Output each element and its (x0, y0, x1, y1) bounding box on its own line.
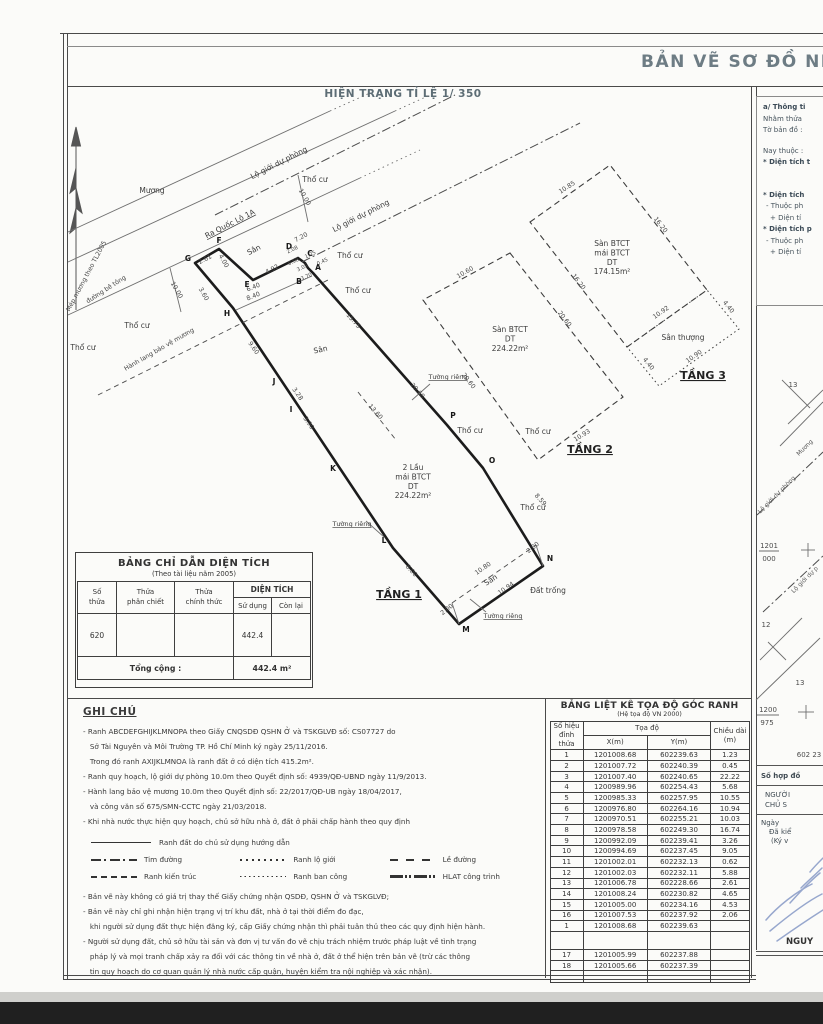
info-line: * Diện tích (763, 190, 823, 202)
coord-cell: 1200994.69 (583, 846, 647, 857)
coord-cell: 1201005.00 (583, 899, 647, 910)
floor2-slab (423, 253, 623, 460)
map-label: Thổ cư (336, 251, 363, 260)
map-label: J (272, 377, 276, 386)
map-line (330, 93, 370, 111)
coord-cell (711, 931, 749, 949)
info-line: + Diện tí (763, 213, 823, 225)
map-label: 4.40 (721, 299, 735, 314)
note-line: khi người sử dụng đất thực hiện đăng ký,… (83, 919, 539, 934)
map-label: Mương (139, 186, 165, 195)
map-label: 20.60 (460, 372, 477, 391)
coord-cell: 1.23 (711, 750, 749, 761)
coord-cell (711, 921, 749, 932)
coord-cell: 1201007.40 (583, 771, 647, 782)
note-line: Trong đó ranh AXIJKLMNOA là ranh đất ở c… (83, 754, 539, 769)
map-label: 2.61 (197, 253, 213, 266)
coord-cell: 1200989.96 (583, 782, 647, 793)
coord-cell: 602237.92 (647, 910, 711, 921)
legend-line-solid (91, 842, 151, 843)
coord-cell: 602230.82 (647, 889, 711, 900)
legend-row: Ranh kiến trúcRanh ban côngHLAT công trì… (91, 868, 539, 885)
map-label: TẦNG 2 (567, 442, 613, 456)
coord-table: Số hiệu đỉnh thửa Tọa độ Chiều dài (m) X… (550, 721, 750, 983)
minimap-label: 000 (762, 555, 775, 563)
info-line: - Thuộc ph (763, 236, 823, 248)
coord-cell: 1201007.53 (583, 910, 647, 921)
owner-line1: NGƯỜI (765, 790, 823, 800)
coord-cell: 1201002.03 (583, 867, 647, 878)
map-label: I (290, 405, 293, 414)
cell-su-dung: 442.4 (234, 614, 272, 657)
coord-cell: 3 (550, 771, 583, 782)
coord-cell: 602237.39 (647, 960, 711, 971)
map-label: Ra Quốc Lộ 1A (203, 207, 257, 240)
coord-cell: 1200992.09 (583, 835, 647, 846)
legend-line-dotfine (240, 876, 286, 878)
coord-cell: 12 (550, 867, 583, 878)
minimap-line (756, 638, 820, 700)
coord-cell (711, 960, 749, 971)
coord-cell: 602239.41 (647, 835, 711, 846)
coord-cell: 1 (550, 750, 583, 761)
coord-cell: 8 (550, 825, 583, 836)
sign-note-label: (Ký v (756, 836, 823, 845)
coord-cell: 10.03 (711, 814, 749, 825)
minimap-line (780, 402, 823, 446)
coord-cell: 1200985.33 (583, 793, 647, 804)
map-label: N (547, 554, 553, 563)
legend-line-dashed (91, 876, 137, 878)
map-label: 9.60 (246, 340, 260, 356)
map-label: P (450, 411, 456, 420)
map-label: Thổ cư (301, 175, 328, 184)
coord-cell: 2 (550, 760, 583, 771)
coord-cell: 602240.65 (647, 771, 711, 782)
map-label: 7.20 (293, 231, 309, 244)
coord-cell: 7 (550, 814, 583, 825)
legend-label: HLAT công trình (443, 872, 500, 881)
col-dien-tich: DIỆN TÍCH (234, 582, 311, 598)
map-label: F (216, 236, 221, 245)
coord-cell: 1200970.51 (583, 814, 647, 825)
coord-cell: 1 (550, 921, 583, 932)
sign-bottom-rule (756, 951, 823, 956)
map-label: 3.60 (197, 286, 210, 302)
map-label: M (462, 625, 469, 634)
coord-cell (711, 971, 749, 983)
coord-cell: 602257.95 (647, 793, 711, 804)
area-table-subtitle: (Theo tài liệu năm 2005) (76, 570, 312, 578)
map-label: TẦNG 3 (680, 368, 726, 382)
map-label: 10.93 (573, 428, 592, 443)
scan-edge-dark (0, 1002, 823, 1024)
map-line (68, 111, 395, 262)
map-label: Lộ giới dự phòng (331, 197, 391, 234)
coord-cell: 14 (550, 889, 583, 900)
map-label: 16.20 (652, 216, 669, 235)
info-line: - Thuộc ph (763, 201, 823, 213)
map-label: 15.75 (344, 312, 361, 330)
coord-cell: 602228.66 (647, 878, 711, 889)
cell-phan-chiet (117, 614, 175, 657)
coord-cell: 2.61 (711, 878, 749, 889)
legend-item: Ranh ban công (240, 872, 389, 881)
coord-cell: 0.62 (711, 857, 749, 868)
minimap-label: 1200 (759, 706, 777, 714)
col-chieu-dai: Chiều dài (m) (711, 722, 749, 750)
coord-cell: 9.05 (711, 846, 749, 857)
map-label: Thổ cư (123, 321, 150, 330)
info-line: * Diện tích p (763, 224, 823, 236)
coord-cell (550, 971, 583, 983)
coord-cell (583, 931, 647, 949)
note-line: pháp lý và mọi tranh chấp xảy ra đối với… (83, 949, 539, 964)
legend-item: HLAT công trình (390, 872, 539, 881)
scanned-survey-sheet: BẢN VẼ SƠ ĐỒ NH HIỆN TRẠNG TỈ LỆ 1/ 350 … (0, 0, 823, 1024)
map-line (302, 123, 580, 262)
map-label: 3.28 (290, 386, 304, 402)
coord-cell: 602237.88 (647, 949, 711, 960)
coord-cell: 602237.45 (647, 846, 711, 857)
coord-cell: 602249.30 (647, 825, 711, 836)
map-label: 13.60 (366, 403, 383, 421)
map-label: Sân thượng (661, 333, 704, 342)
coord-cell: 17 (550, 949, 583, 960)
map-label: H (224, 309, 230, 318)
signer-name: NGUY (756, 937, 823, 947)
coord-cell: 3.26 (711, 835, 749, 846)
info-line: a/ Thông ti (763, 102, 823, 114)
area-table-box: BẢNG CHỈ DẪN DIỆN TÍCH (Theo tài liệu nă… (75, 552, 313, 688)
minimap-label: 13 (796, 679, 805, 687)
coord-cell: 2.06 (711, 910, 749, 921)
coord-cell: 602264.16 (647, 803, 711, 814)
signature-block: Số hợp đồ NGƯỜI CHỦ S Ngày Đã kiể (Ký v … (756, 765, 823, 956)
info-line: Nhằm thửa (763, 114, 823, 126)
col-thua-chinh-thuc: Thửa chính thức (175, 582, 234, 614)
legend-line-dashdot (91, 859, 137, 861)
info-line: Nay thuộc : (763, 146, 823, 158)
legend-item: Ranh kiến trúc (91, 872, 240, 881)
note-line: - Người sử dụng đất, chủ sở hữu tài sản … (83, 934, 539, 949)
note-line: - Bản vẽ này chỉ ghi nhận hiện trạng vị … (83, 904, 539, 919)
area-table: Số thửa Thửa phân chiết Thửa chính thức … (77, 581, 311, 680)
col-toa-do: Tọa độ (583, 722, 711, 736)
map-label: G (185, 254, 191, 263)
cell-so-thua: 620 (78, 614, 117, 657)
map-label: Sân (246, 242, 263, 257)
col-x: X(m) (583, 736, 647, 750)
coord-cell: 10.55 (711, 793, 749, 804)
map-label: 20.60 (408, 382, 425, 400)
coord-cell: 6 (550, 803, 583, 814)
coord-cell: 602255.21 (647, 814, 711, 825)
minimap-label: 13 (789, 381, 798, 389)
coord-cell: 602239.63 (647, 921, 711, 932)
legend-label: Ranh ban công (293, 872, 347, 881)
map-label: Sàn BTCTDT224.22m² (492, 325, 529, 353)
owner-label: NGƯỜI CHỦ S (756, 786, 823, 815)
map-label: Tường riêng (331, 520, 371, 528)
coord-cell: 1200976.80 (583, 803, 647, 814)
info-line: * Diện tích t (763, 157, 823, 169)
legend-line-dotted (240, 859, 286, 861)
map-label: 0.58 (287, 257, 300, 267)
map-line (360, 150, 420, 178)
map-label: L (382, 536, 387, 545)
coord-cell: 1201008.24 (583, 889, 647, 900)
owner-line2: CHỦ S (765, 800, 823, 810)
coord-cell: 18 (550, 960, 583, 971)
coord-cell: 1201005.66 (583, 960, 647, 971)
map-label: 0.45 (316, 257, 329, 267)
coord-cell: 22.22 (711, 771, 749, 782)
map-label: Sân (482, 572, 499, 587)
info-line: + Diện tí (763, 247, 823, 259)
map-label: 10.85 (558, 180, 577, 196)
map-label: Thổ cư (69, 343, 96, 352)
line-legend: Ranh đất do chủ sử dụng hướng dẫn Tim đư… (91, 834, 539, 885)
area-table-title: BẢNG CHỈ DẪN DIỆN TÍCH (76, 558, 312, 569)
map-label: 3.70 (300, 272, 313, 282)
note-line: tin quy hoạch do cơ quan quản lý nhà nướ… (83, 964, 539, 979)
minimap-label: 1201 (760, 542, 778, 550)
legend-label: Ranh đất do chủ sử dụng hướng dẫn (159, 838, 290, 847)
legend-label: Ranh lộ giới (293, 855, 335, 864)
coord-cell: 11 (550, 857, 583, 868)
col-con-lai: Còn lại (272, 598, 311, 614)
coord-cell: 1200978.58 (583, 825, 647, 836)
coord-cell: 15 (550, 899, 583, 910)
coord-table-subtitle: (Hệ tọa độ VN 2000) (548, 711, 751, 718)
minimap-label: 975 (760, 719, 773, 727)
note-line: - Ranh ABCDEFGHIJKLMNOPA theo Giấy CNQSD… (83, 724, 539, 739)
minimap-label: Mương (795, 438, 814, 457)
col-point-id: Số hiệu đỉnh thửa (550, 722, 583, 750)
col-so-thua: Số thửa (78, 582, 117, 614)
col-thua-phan-chiet: Thửa phân chiết (117, 582, 175, 614)
coord-cell: 5 (550, 793, 583, 804)
map-label: 10.90 (685, 349, 704, 365)
coord-cell (550, 931, 583, 949)
map-label: Sàn BTCTmái BTCTDT174.15m² (594, 239, 631, 276)
coord-cell: 16 (550, 910, 583, 921)
coord-cell: 1201005.99 (583, 949, 647, 960)
map-line (215, 95, 455, 215)
coord-cell: 4.65 (711, 889, 749, 900)
coord-cell: 1201008.68 (583, 750, 647, 761)
map-label: 3.05 (296, 263, 309, 273)
legend-row: Tim đườngRanh lộ giớiLề đường (91, 851, 539, 868)
coord-cell: 602232.13 (647, 857, 711, 868)
total-label: Tổng cộng : (78, 657, 234, 680)
map-label: 10.00 (297, 188, 312, 207)
map-label: 10.60 (456, 265, 475, 280)
cell-con-lai (272, 614, 311, 657)
scan-edge-gray (0, 992, 823, 1002)
note-line: - Hành lang bảo vệ mương 10.0m theo Quyế… (83, 784, 539, 799)
note-line: và công văn số 675/SMN-CCTC ngày 21/03/2… (83, 799, 539, 814)
legend-label: Tim đường (144, 855, 182, 864)
note-line: - Bản vẽ này không có giá trị thay thế G… (83, 889, 539, 904)
map-label: 10.94 (497, 581, 516, 597)
coord-cell: 5.88 (711, 867, 749, 878)
minimap-label: Lộ giới dự p (790, 565, 820, 595)
legend-item: Ranh lộ giới (240, 855, 389, 864)
minimap-label: 602 23 (797, 751, 822, 759)
note-line: - Ranh quy hoạch, lộ giới dự phòng 10.0m… (83, 769, 539, 784)
coord-cell: 602254.43 (647, 782, 711, 793)
coord-table-box: BẢNG LIỆT KÊ TỌA ĐỘ GÓC RANH (Hệ tọa độ … (548, 700, 751, 983)
map-label: Đất trống (530, 586, 566, 595)
coord-cell: 0.45 (711, 760, 749, 771)
legend-item: Tim đường (91, 855, 240, 864)
minimap-label: 12 (762, 621, 771, 629)
coord-cell: 1201008.68 (583, 921, 647, 932)
coord-cell: 5.68 (711, 782, 749, 793)
coord-cell: 602239.63 (647, 750, 711, 761)
note-line: Sở Tài Nguyên và Môi Trường TP. Hồ Chí M… (83, 739, 539, 754)
coord-cell (647, 971, 711, 983)
map-label: Thổ cư (524, 427, 551, 436)
map-label: 4.92 (264, 263, 280, 276)
map-line (395, 95, 430, 111)
map-label: Hành lang bảo vệ mương (123, 326, 196, 373)
signature-space (756, 845, 823, 937)
note-line: - Khi nhà nước thực hiện quy hoạch, chủ … (83, 814, 539, 829)
legend-line-dashwide (390, 859, 436, 861)
map-label: 1.25 (304, 250, 317, 260)
date-label: Ngày (756, 815, 823, 827)
map-line (98, 279, 330, 395)
coord-cell: 10.94 (711, 803, 749, 814)
map-label: TẦNG 1 (376, 587, 422, 601)
map-label: Thổ cư (344, 286, 371, 295)
info-panel: a/ Thông tiNhằm thửaTờ bản đồ :Nay thuộc… (756, 96, 823, 306)
col-su-dung: Sử dụng (234, 598, 272, 614)
coord-cell: 10 (550, 846, 583, 857)
map-label: đường bê tông (84, 273, 127, 305)
map-label: Sân (313, 344, 329, 356)
map-label: Lộ giới dự phòng (249, 144, 309, 181)
notes-section: GHI CHÚ - Ranh ABCDEFGHIJKLMNOPA theo Gi… (67, 698, 545, 976)
contract-number-label: Số hợp đồ (756, 766, 823, 786)
legend-label: Ranh kiến trúc (144, 872, 196, 881)
col-y: Y(m) (647, 736, 711, 750)
map-label: Thổ cư (456, 426, 483, 435)
coord-cell: 4 (550, 782, 583, 793)
coord-table-title: BẢNG LIỆT KÊ TỌA ĐỘ GÓC RANH (548, 700, 751, 711)
map-label: 4.40 (641, 356, 655, 371)
legend-line-dashdotdot (390, 875, 436, 878)
info-line: Tờ bản đồ : (763, 125, 823, 137)
coord-cell: 4.53 (711, 899, 749, 910)
map-label: 10.00 (169, 281, 184, 300)
map-label: 2 Lầumái BTCTDT224.22m² (395, 463, 432, 500)
checked-label: Đã kiể (756, 827, 823, 836)
total-value: 442.4 m² (234, 657, 311, 680)
coord-cell: 9 (550, 835, 583, 846)
coord-cell: 602240.39 (647, 760, 711, 771)
coord-cell: 1201006.78 (583, 878, 647, 889)
coord-cell (647, 931, 711, 949)
map-label: O (489, 456, 495, 465)
notes-title: GHI CHÚ (83, 706, 539, 718)
map-line (68, 111, 330, 232)
coord-cell: 602234.16 (647, 899, 711, 910)
legend-item: Lề đường (390, 855, 539, 864)
map-line (68, 178, 360, 315)
map-label: 20.60 (556, 310, 573, 329)
cell-chinh-thuc (175, 614, 234, 657)
map-label: K (330, 464, 337, 473)
coord-cell: 16.74 (711, 825, 749, 836)
map-label: Tường riêng (482, 612, 522, 620)
map-label: 16.20 (570, 273, 587, 292)
coord-cell: 1201002.01 (583, 857, 647, 868)
minimap-label: Lộ giới dự phòng (757, 475, 797, 515)
coord-cell: 13 (550, 878, 583, 889)
legend-label: Lề đường (443, 855, 476, 864)
coord-cell: 1201007.72 (583, 760, 647, 771)
minimap-line (763, 556, 823, 612)
coord-cell (583, 971, 647, 983)
coord-cell: 602232.11 (647, 867, 711, 878)
minimap-line (768, 642, 786, 660)
coord-cell (711, 949, 749, 960)
